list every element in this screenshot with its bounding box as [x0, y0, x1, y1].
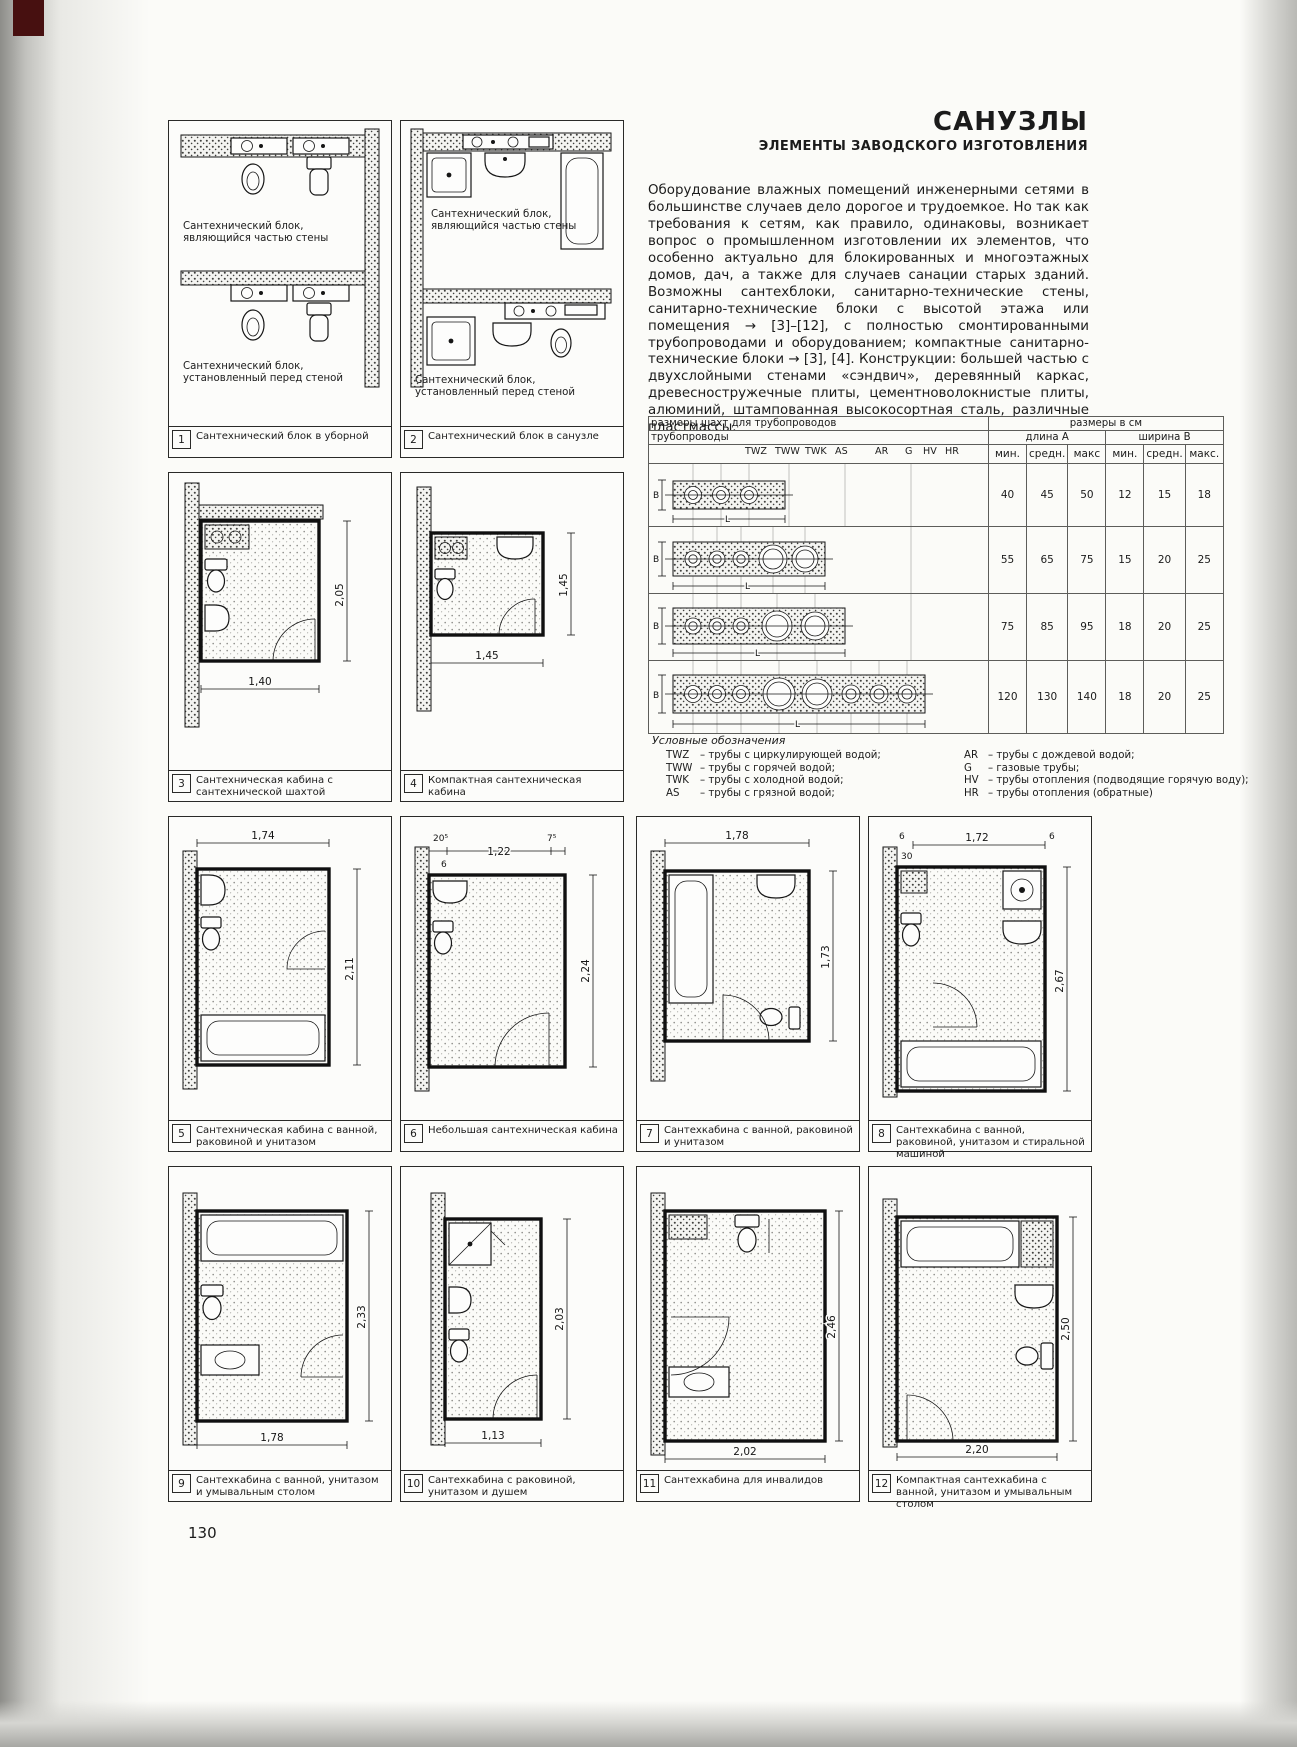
dimension-line-horizontal: 20⁵ 7⁵ 1,22 6 [429, 834, 565, 870]
pipe-label-hv: HV [923, 446, 937, 457]
wall-hatch [199, 505, 323, 519]
floor-plan-drawing: 2,50 2,20 [869, 1167, 1091, 1469]
wall-hatch [415, 847, 429, 1091]
b-dimension: B [653, 675, 666, 713]
legend: Условные обозначения TWZ– трубы с циркул… [652, 734, 1214, 800]
svg-text:B: B [653, 555, 659, 565]
pipe-shaft-shape [1021, 1221, 1053, 1267]
svg-text:6: 6 [899, 832, 905, 842]
washstand-shape [201, 1345, 259, 1375]
pipe-shaft-shape [669, 1215, 707, 1239]
figure-number: 9 [172, 1474, 191, 1493]
dimension-line-horizontal: 2,02 [665, 1446, 825, 1463]
page-title: САНУЗЛЫ [648, 108, 1088, 136]
floor-plan-drawing: 6 30 1,72 6 [869, 817, 1091, 1119]
svg-text:2,11: 2,11 [344, 957, 356, 980]
legend-item: HR– трубы отопления (обратные) [964, 788, 1249, 801]
washstand-shape [669, 1367, 729, 1397]
pipe-label-as: AS [835, 446, 848, 457]
sink-shape [433, 881, 467, 903]
bathtub-shape [201, 1215, 343, 1261]
wall-hatch [365, 129, 379, 387]
dimension-line-vertical: 1,73 [820, 871, 837, 1041]
table-pipes-header: трубопроводы [649, 431, 989, 445]
pipe-shaft-shape [435, 537, 467, 559]
figure-inner-label: Сантехнический блок, установленный перед… [415, 375, 583, 400]
table-length-header: длина A [989, 431, 1106, 445]
figure-panel-9: 2,33 1,78 9 Сантехкабина с ванной, унита… [168, 1166, 392, 1502]
stat-col-label: средн. [1144, 445, 1185, 464]
bathtub-shape [561, 153, 603, 249]
svg-text:L: L [725, 515, 730, 525]
shaft-diagram-2: B L [649, 527, 989, 594]
dimension-line-vertical: 2,03 [554, 1219, 571, 1419]
dimension-line-vertical: 2,11 [344, 869, 361, 1065]
wall-hatch [183, 851, 197, 1089]
wall-hatch [651, 851, 665, 1081]
pipe-label-g: G [905, 446, 912, 457]
figure-caption: 5 Сантехническая кабина с ванной, ракови… [169, 1120, 391, 1151]
svg-text:1,73: 1,73 [820, 945, 832, 968]
sink-shape [205, 605, 229, 631]
floor-plan-drawing: 2,05 1,40 [169, 473, 391, 769]
floor-plan-drawing: 2,03 1,13 [401, 1167, 623, 1469]
stat-col-label: мин. [1106, 445, 1144, 464]
figure-panel-10: 2,03 1,13 10 Сантехкабина с раковиной, у… [400, 1166, 624, 1502]
sink-shape [201, 875, 225, 905]
svg-text:1,74: 1,74 [251, 830, 275, 842]
scanned-book-page: { "page_number": "130", "header": { "tit… [0, 0, 1297, 1747]
figure-caption: 12 Компактная сантехкабина с ванной, уни… [869, 1470, 1091, 1501]
bidet-shape [242, 164, 264, 194]
pipe-type-labels: TWZ TWW TWK AS AR G HV HR [649, 445, 989, 464]
dimension-line-horizontal: 1,78 [197, 1432, 347, 1449]
figure-panel-1: Сантехнический блок, являющийся частью с… [168, 120, 392, 458]
figure-panel-4: 1,45 1,45 4 Компактная сантехническая ка… [400, 472, 624, 802]
dimension-line-vertical: 1,45 [558, 533, 575, 635]
svg-text:L: L [795, 720, 800, 730]
svg-text:1,45: 1,45 [558, 573, 570, 596]
toilet-shape [201, 1285, 223, 1320]
figure-caption: 11 Сантехкабина для инвалидов [637, 1470, 859, 1501]
header: САНУЗЛЫ ЭЛЕМЕНТЫ ЗАВОДСКОГО ИЗГОТОВЛЕНИЯ [648, 108, 1088, 154]
legend-item: TWZ– трубы с циркулирующей водой; [666, 750, 950, 763]
svg-text:2,20: 2,20 [965, 1444, 988, 1456]
figure-panel-11: 2,46 2,02 11 Сантехкабина для инвалидов [636, 1166, 860, 1502]
floor-plan-drawing: 2,33 1,78 [169, 1167, 391, 1469]
dimension-line-vertical: 2,50 [1060, 1217, 1077, 1441]
svg-text:1,78: 1,78 [725, 830, 748, 842]
figure-panel-8: 6 30 1,72 6 [868, 816, 1092, 1152]
svg-text:L: L [745, 582, 750, 592]
figure-caption: 4 Компактная сантехническая кабина [401, 770, 623, 801]
pipe-label-twz: TWZ [745, 446, 767, 457]
pipe-label-tww: TWW [775, 446, 800, 457]
l-dimension: L [673, 720, 925, 730]
figure-panel-6: 20⁵ 7⁵ 1,22 6 [400, 816, 624, 1152]
shaft-diagram-1: B L [649, 464, 989, 527]
sanitary-block-shape [463, 135, 553, 149]
l-dimension: L [673, 582, 825, 592]
wall-hatch [651, 1193, 665, 1455]
figure-number: 12 [872, 1474, 891, 1493]
page-subtitle: ЭЛЕМЕНТЫ ЗАВОДСКОГО ИЗГОТОВЛЕНИЯ [648, 139, 1088, 154]
figure-number: 2 [404, 430, 423, 449]
bathtub-shape [201, 1015, 325, 1061]
svg-text:6: 6 [1049, 832, 1055, 842]
svg-text:B: B [653, 691, 659, 701]
figure-caption: 9 Сантехкабина с ванной, унитазом и умыв… [169, 1470, 391, 1501]
wall-hatch [417, 487, 431, 711]
svg-text:30: 30 [901, 852, 913, 862]
figure-number: 1 [172, 430, 191, 449]
stat-col-label: средн. [1027, 445, 1068, 464]
table-title-left: размеры шахт для трубопроводов [649, 417, 989, 431]
figure-caption: 6 Небольшая сантехническая кабина [401, 1120, 623, 1151]
svg-text:2,50: 2,50 [1060, 1317, 1072, 1340]
legend-item: G– газовые трубы; [964, 763, 1249, 776]
svg-text:L: L [755, 649, 760, 659]
svg-text:1,45: 1,45 [475, 650, 498, 662]
svg-text:2,33: 2,33 [356, 1305, 368, 1328]
bidet-shape [242, 310, 264, 340]
legend-item: TWK– трубы с холодной водой; [666, 775, 950, 788]
figure-panel-12: 2,50 2,20 12 Компактная сантехкабина с в… [868, 1166, 1092, 1502]
page-number: 130 [188, 1524, 217, 1542]
wall-hatch [185, 483, 199, 727]
dimension-line-vertical: 2,46 [826, 1211, 843, 1441]
toilet-shape [551, 329, 571, 357]
svg-text:1,72: 1,72 [965, 832, 988, 844]
svg-text:7⁵: 7⁵ [547, 834, 557, 844]
shower-shape [427, 317, 475, 365]
dimension-line-horizontal: 1,13 [445, 1430, 541, 1447]
figure-number: 11 [640, 1474, 659, 1493]
svg-text:B: B [653, 622, 659, 632]
dimension-line-vertical: 2,33 [356, 1211, 373, 1421]
table-row: B L [649, 594, 1224, 661]
sink-shape [485, 153, 525, 177]
bathtub-shape [901, 1221, 1019, 1267]
shaft-diagram-3: B L [649, 594, 989, 661]
pipe-label-hr: HR [945, 446, 959, 457]
dimension-line-horizontal: 1,45 [431, 650, 543, 667]
floor-plan-drawing: 1,45 1,45 [401, 473, 623, 769]
stat-col-label: мин. [989, 445, 1027, 464]
dimension-line-horizontal: 6 30 1,72 6 [899, 832, 1055, 862]
legend-item: AR– трубы с дождевой водой; [964, 750, 1249, 763]
shower-shape [427, 153, 471, 197]
figure-panel-7: 1,78 [636, 816, 860, 1152]
svg-text:2,05: 2,05 [334, 583, 346, 606]
toilet-shape [449, 1329, 469, 1362]
stat-col-label: макс. [1185, 445, 1223, 464]
table-width-header: ширина B [1106, 431, 1223, 445]
figure-inner-label: Сантехнический блок, являющийся частью с… [431, 209, 599, 234]
figure-number: 8 [872, 1124, 891, 1143]
figure-number: 10 [404, 1474, 423, 1493]
bathtub-shape [901, 1041, 1041, 1087]
svg-text:B: B [653, 491, 659, 501]
sink-shape [1003, 921, 1041, 944]
legend-title: Условные обозначения [652, 734, 1214, 747]
stat-col-label: макс [1068, 445, 1106, 464]
svg-text:1,40: 1,40 [248, 676, 271, 688]
floor-plan-drawing: 1,74 2,11 [169, 817, 391, 1119]
toilet-shape [901, 913, 921, 946]
cabin-floor [429, 875, 565, 1067]
toilet-shape [205, 559, 227, 592]
dimension-line-horizontal: 2,20 [897, 1444, 1057, 1461]
figure-panel-5: 1,74 2,11 [168, 816, 392, 1152]
figure-caption: 8 Сантехкабина с ванной, раковиной, унит… [869, 1120, 1091, 1151]
svg-text:2,24: 2,24 [580, 959, 592, 983]
svg-text:2,03: 2,03 [554, 1307, 566, 1330]
wall-hatch [411, 129, 423, 387]
b-dimension: B [653, 608, 666, 644]
washing-machine-shape [1003, 871, 1041, 909]
legend-item: TWW– трубы с горячей водой; [666, 763, 950, 776]
figure-inner-label: Сантехнический блок, установленный перед… [183, 361, 351, 386]
svg-text:1,22: 1,22 [487, 846, 510, 858]
figure-panel-2: Сантехнический блок, являющийся частью с… [400, 120, 624, 458]
sink-shape [757, 875, 795, 898]
toilet-shape [307, 303, 331, 341]
figure-number: 3 [172, 774, 191, 793]
svg-text:2,46: 2,46 [826, 1315, 838, 1339]
toilet-shape [435, 569, 455, 600]
b-dimension: B [653, 480, 666, 510]
svg-text:6: 6 [441, 860, 447, 870]
wall-hatch [181, 271, 365, 285]
figure-caption: 10 Сантехкабина с раковиной, унитазом и … [401, 1470, 623, 1501]
legend-item: AS– трубы с грязной водой; [666, 788, 950, 801]
pipe-label-ar: AR [875, 446, 888, 457]
shaft-diagram-4: B [649, 661, 989, 734]
sink-shape [1015, 1285, 1053, 1308]
shaft-dimension-table: размеры шахт для трубопроводов размеры в… [648, 416, 1224, 734]
sanitary-block-shape [231, 285, 349, 301]
figure-caption: 3 Сантехническая кабина с сантехнической… [169, 770, 391, 801]
sink-shape [497, 537, 533, 559]
table-title-right: размеры в см [989, 417, 1224, 431]
bathtub-shape [669, 875, 713, 1003]
wall-hatch [431, 1193, 445, 1445]
wall-hatch [423, 289, 611, 303]
wall-hatch [883, 1199, 897, 1447]
figure-caption: 7 Сантехкабина с ванной, раковиной и уни… [637, 1120, 859, 1151]
page-background: САНУЗЛЫ ЭЛЕМЕНТЫ ЗАВОДСКОГО ИЗГОТОВЛЕНИЯ… [0, 0, 1297, 1747]
b-dimension: B [653, 542, 666, 576]
floor-plan-drawing: 1,78 [637, 817, 859, 1119]
dimension-line-horizontal: 1,40 [201, 676, 319, 693]
figure-number: 5 [172, 1124, 191, 1143]
legend-item: HV– трубы отопления (подводящие горячую … [964, 775, 1249, 788]
table-row: B L [649, 527, 1224, 594]
figure-caption: 2 Сантехнический блок в санузле [401, 426, 623, 457]
pipe-shaft-shape [901, 871, 927, 893]
dimension-line-horizontal: 1,74 [197, 830, 329, 847]
sink-shape [493, 323, 531, 346]
figure-number: 6 [404, 1124, 423, 1143]
intro-paragraph: Оборудование влажных помещений инженерны… [648, 183, 1089, 437]
dimension-line-vertical: 2,24 [580, 875, 597, 1067]
svg-text:1,13: 1,13 [481, 1430, 504, 1442]
sink-shape [449, 1287, 471, 1313]
dimension-line-vertical: 2,05 [334, 521, 351, 661]
figure-inner-label: Сантехнический блок, являющийся частью с… [183, 221, 351, 246]
toilet-shape [201, 917, 221, 950]
floor-plan-drawing: 20⁵ 7⁵ 1,22 6 [401, 817, 623, 1119]
dimension-line-vertical: 2,67 [1054, 867, 1071, 1091]
pipe-label-twk: TWK [805, 446, 827, 457]
svg-text:2,02: 2,02 [733, 1446, 756, 1458]
sanitary-block-shape [505, 303, 605, 319]
toilet-shape [307, 157, 331, 195]
wall-hatch [183, 1193, 197, 1445]
svg-text:2,67: 2,67 [1054, 969, 1066, 992]
figure-panel-3: 2,05 1,40 3 Сантехническая кабина с сант… [168, 472, 392, 802]
l-dimension: L [673, 649, 845, 659]
table-row: B [649, 661, 1224, 734]
pipe-shaft-shape [205, 525, 249, 549]
figure-number: 7 [640, 1124, 659, 1143]
wall-hatch [883, 847, 897, 1097]
l-dimension: L [673, 515, 785, 525]
floor-plan-drawing: 2,46 2,02 [637, 1167, 859, 1469]
table-row: B L 4 [649, 464, 1224, 527]
figure-number: 4 [404, 774, 423, 793]
toilet-shape [433, 921, 453, 954]
figure-caption: 1 Сантехнический блок в уборной [169, 426, 391, 457]
svg-text:20⁵: 20⁵ [433, 834, 448, 844]
dimension-line-horizontal: 1,78 [665, 830, 809, 847]
svg-text:1,78: 1,78 [260, 1432, 283, 1444]
